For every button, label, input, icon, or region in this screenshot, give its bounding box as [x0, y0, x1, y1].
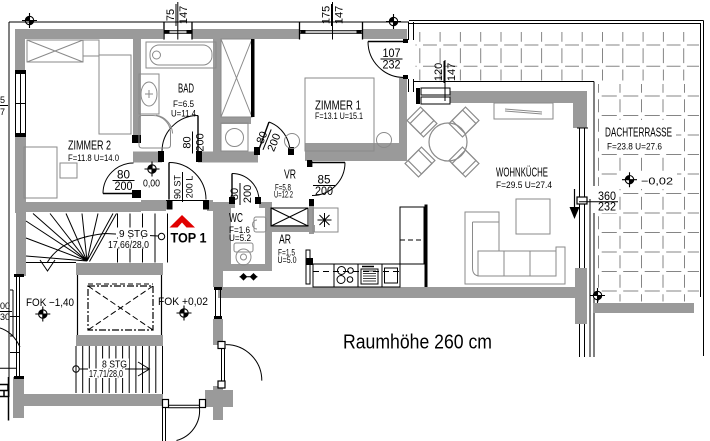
svg-text:F=23.8 U=27.6: F=23.8 U=27.6	[607, 142, 662, 152]
svg-text:TOP 1: TOP 1	[171, 231, 207, 246]
svg-text:F=29.5 U=27.4: F=29.5 U=27.4	[496, 180, 552, 190]
svg-text:30: 30	[0, 312, 10, 322]
svg-text:FOK −1,40: FOK −1,40	[26, 297, 74, 309]
svg-text:WOHNKÜCHE: WOHNKÜCHE	[496, 166, 548, 180]
svg-text:200: 200	[195, 133, 207, 151]
svg-text:0,00: 0,00	[143, 177, 160, 189]
svg-text:200: 200	[115, 179, 133, 193]
svg-text:107: 107	[383, 48, 401, 60]
svg-text:75: 75	[165, 9, 177, 21]
svg-text:F=6.5: F=6.5	[173, 99, 194, 109]
svg-text:−0,02: −0,02	[641, 176, 673, 188]
svg-text:7: 7	[0, 107, 5, 117]
svg-text:U=12.2: U=12.2	[274, 190, 293, 200]
svg-text:Raumhöhe 260 cm: Raumhöhe 260 cm	[343, 331, 492, 354]
svg-text:80: 80	[182, 136, 194, 148]
svg-text:VR: VR	[284, 168, 296, 182]
svg-text:F=11.8 U=14.0: F=11.8 U=14.0	[68, 153, 119, 163]
svg-text:200: 200	[242, 185, 254, 203]
svg-text:ZIMMER 2: ZIMMER 2	[68, 139, 111, 153]
svg-text:147: 147	[334, 6, 346, 24]
svg-text:147: 147	[446, 63, 458, 81]
svg-text:17,71/28,0: 17,71/28,0	[89, 368, 123, 380]
svg-text:FOK +0,02: FOK +0,02	[158, 296, 208, 308]
svg-text:WC: WC	[229, 211, 243, 225]
svg-text:200: 200	[315, 184, 333, 198]
svg-text:80: 80	[229, 188, 241, 200]
svg-text:00: 00	[0, 301, 10, 311]
svg-text:232: 232	[598, 200, 616, 214]
svg-text:232: 232	[383, 60, 401, 72]
svg-text:BAD: BAD	[178, 82, 194, 96]
svg-text:147: 147	[178, 6, 190, 24]
svg-text:175: 175	[321, 6, 333, 24]
svg-text:5: 5	[0, 95, 5, 105]
svg-text:F=13.1 U=15.1: F=13.1 U=15.1	[315, 111, 363, 121]
svg-text:U=5.2: U=5.2	[229, 233, 251, 243]
svg-text:DACHTERRASSE: DACHTERRASSE	[605, 126, 672, 140]
svg-text:AR: AR	[279, 233, 291, 247]
svg-text:17,66/28,0: 17,66/28,0	[108, 239, 149, 251]
svg-text:U=5.0: U=5.0	[278, 255, 297, 265]
svg-text:120: 120	[433, 63, 445, 81]
svg-text:U=11.4: U=11.4	[171, 109, 196, 119]
svg-text:200 L: 200 L	[185, 176, 195, 199]
svg-text:90 ST: 90 ST	[173, 174, 183, 199]
